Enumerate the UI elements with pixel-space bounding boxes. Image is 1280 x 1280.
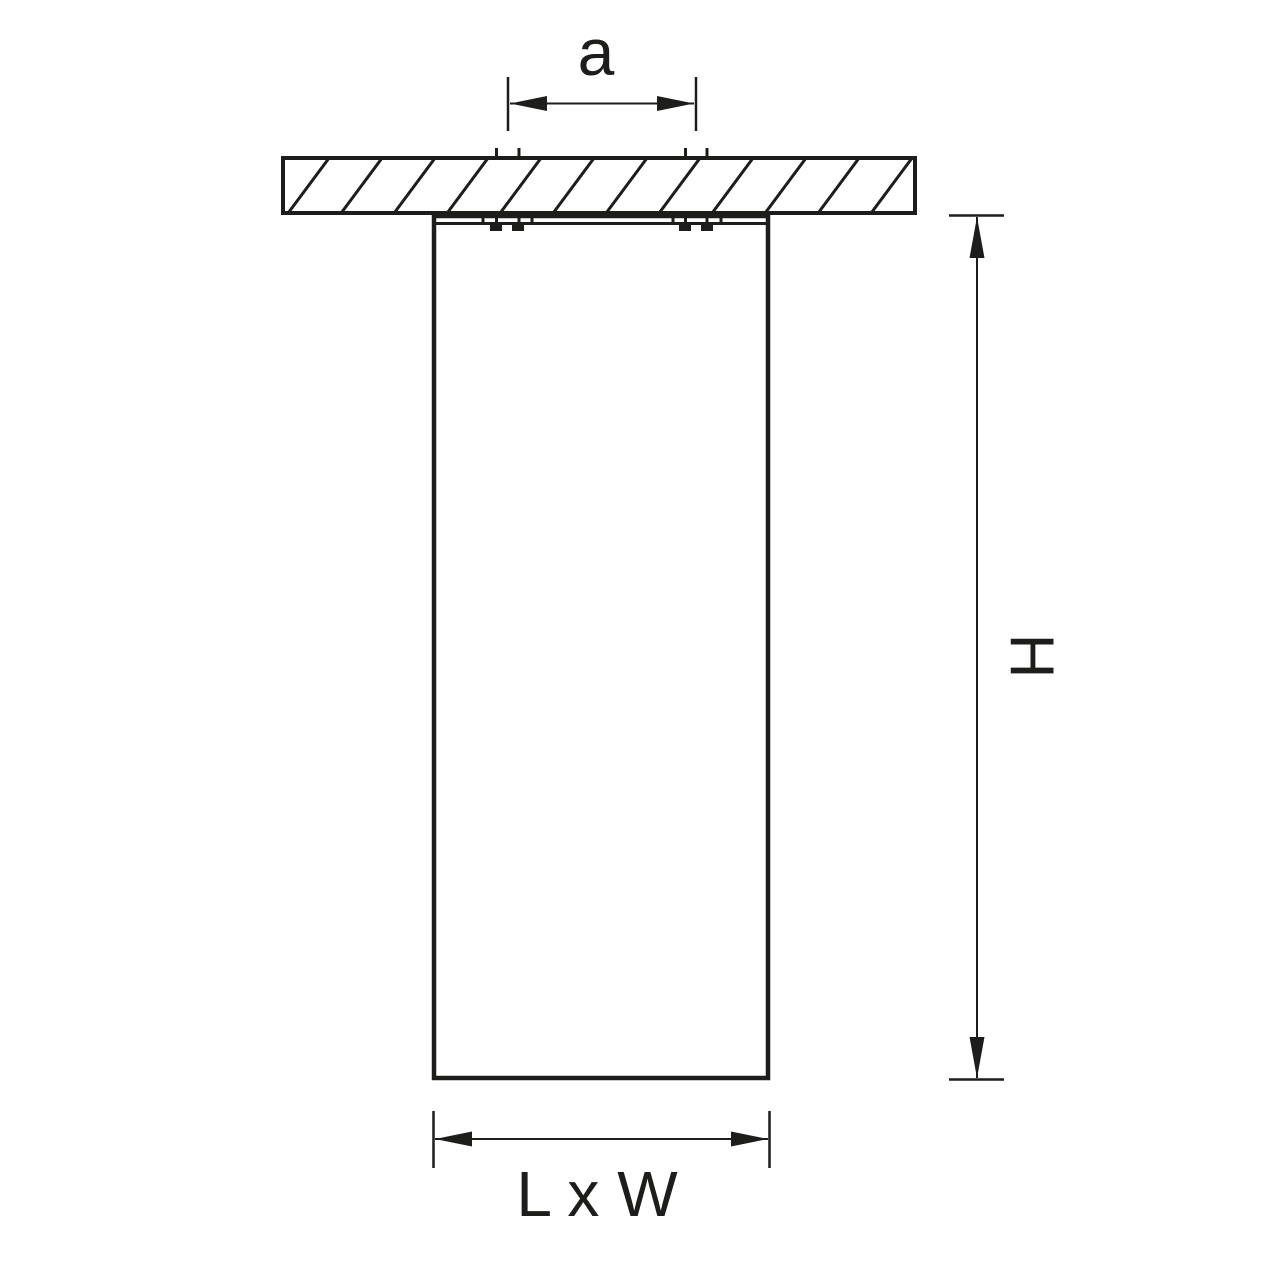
drawing-canvas: a H L x W [0,0,1280,1280]
fixture-dimension-diagram: a H L x W [0,0,1280,1280]
dim-h-label: H [996,634,1065,679]
ceiling-section [230,150,971,220]
screw-head-tab [701,225,713,232]
fixture-body [434,216,768,1078]
screw-head-tab [679,225,691,232]
ceiling-plate-fill [283,158,915,213]
screw-head-tab [512,225,524,232]
dim-lw-label: L x W [516,1158,678,1230]
screw-head-tab [490,225,502,232]
dim-a-label: a [578,15,615,89]
